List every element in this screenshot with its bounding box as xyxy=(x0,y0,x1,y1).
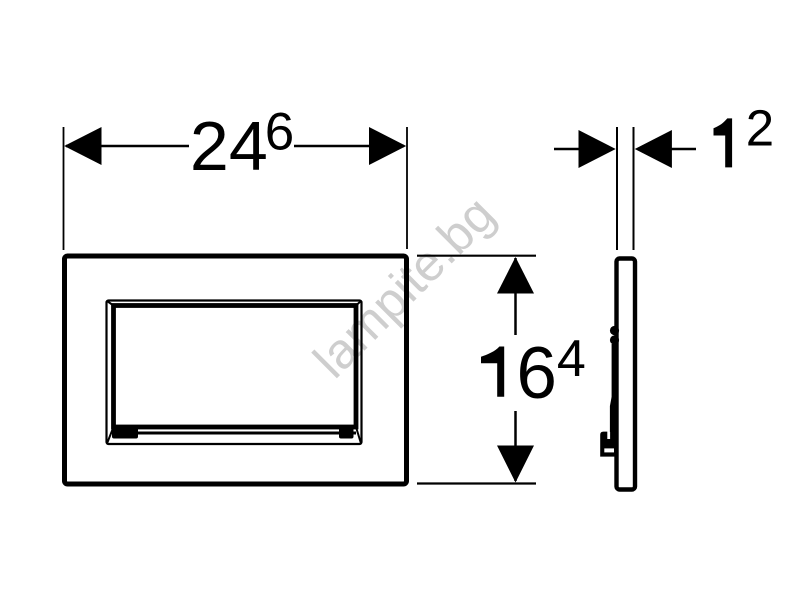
svg-text:4: 4 xyxy=(557,330,586,388)
svg-text:6: 6 xyxy=(516,333,557,414)
svg-text:24: 24 xyxy=(190,107,268,185)
svg-text:2: 2 xyxy=(746,100,774,157)
svg-text:6: 6 xyxy=(265,103,294,162)
